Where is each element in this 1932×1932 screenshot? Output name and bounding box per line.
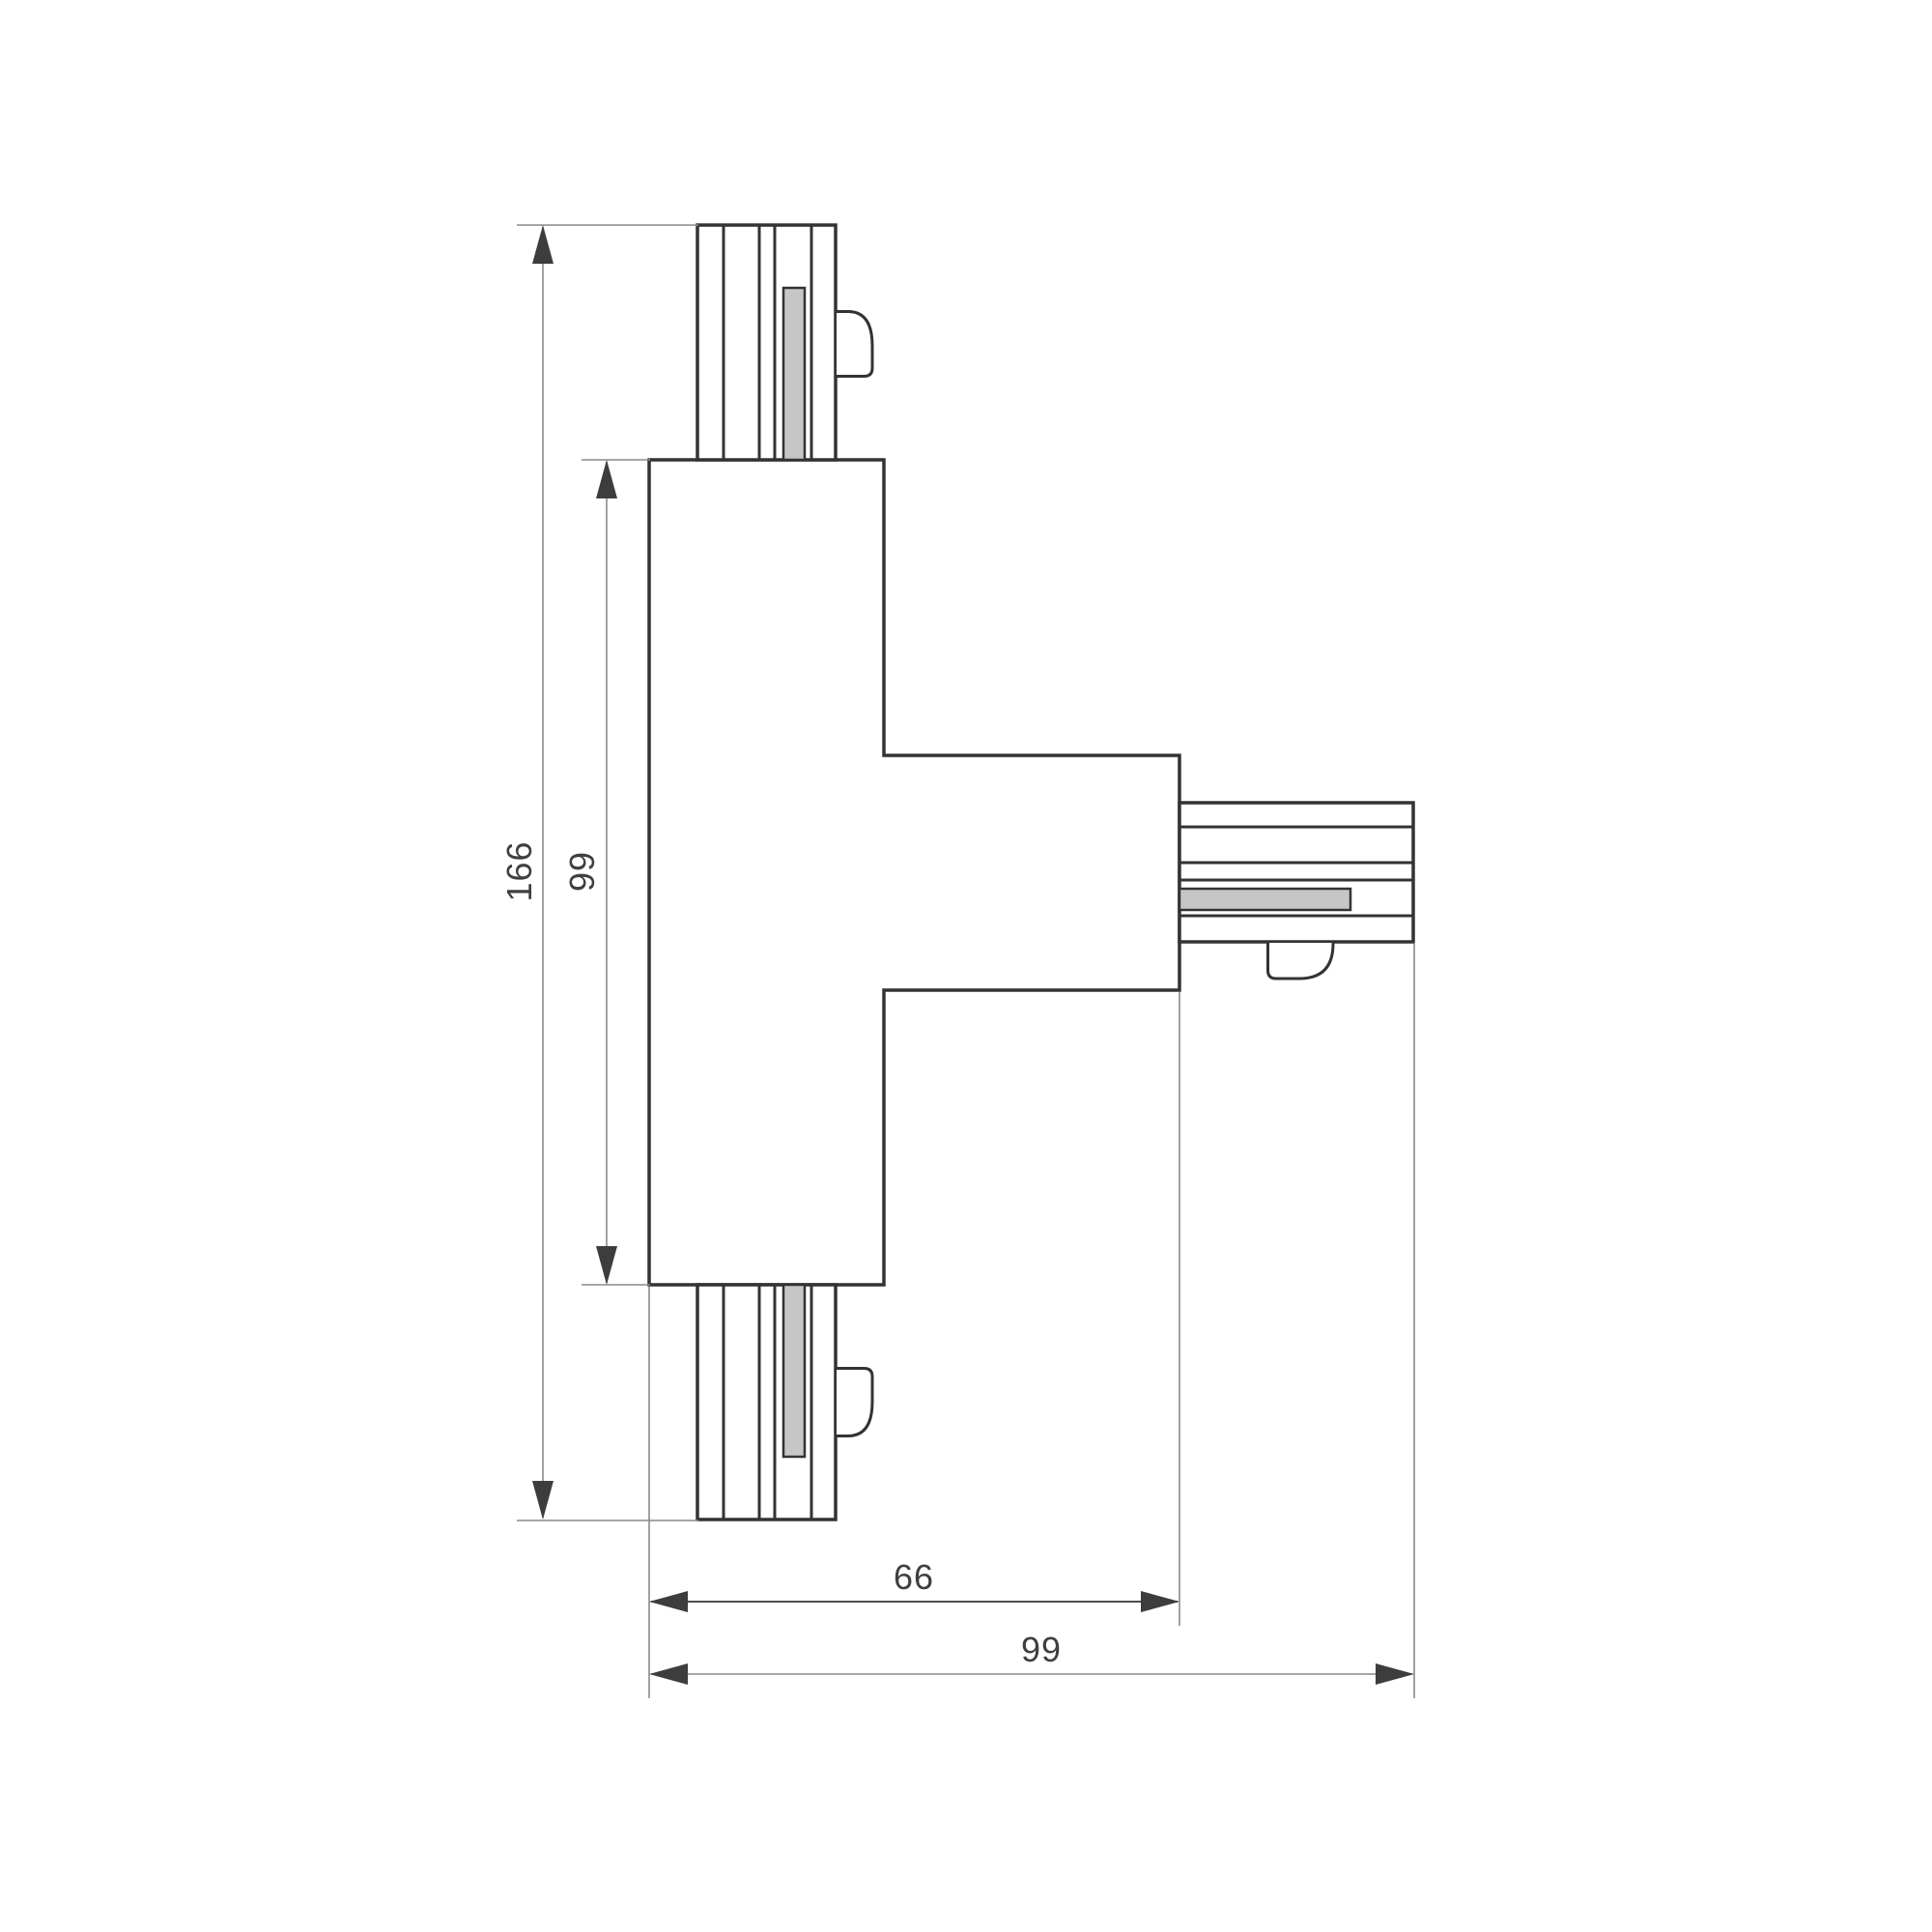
top-terminal xyxy=(697,225,872,460)
dimension-overall-width: 99 xyxy=(649,1630,1414,1685)
top-terminal-latch xyxy=(837,312,872,377)
bottom-terminal-contact-strip xyxy=(783,1285,805,1457)
bottom-terminal-latch xyxy=(837,1369,872,1436)
arrowhead-right xyxy=(1141,1591,1179,1612)
right-terminal xyxy=(1179,803,1413,979)
right-terminal-outline xyxy=(1179,803,1413,942)
arrowhead-left xyxy=(649,1591,688,1612)
arrowhead-down xyxy=(532,1481,554,1520)
technical-drawing-canvas: 166 99 66 99 xyxy=(0,0,1932,1932)
dim-label-99h: 99 xyxy=(1021,1630,1062,1669)
right-terminal-contact-strip xyxy=(1179,889,1350,910)
dimension-body-height: 99 xyxy=(562,460,650,1285)
t-connector-drawing: 166 99 66 99 xyxy=(0,0,1932,1932)
bottom-terminal-outline xyxy=(697,1285,836,1520)
right-terminal-latch xyxy=(1268,943,1334,979)
dim-label-99v: 99 xyxy=(562,851,602,892)
dim-label-66: 66 xyxy=(894,1557,934,1597)
arrowhead-down xyxy=(596,1246,617,1285)
arrowhead-up xyxy=(532,225,554,264)
top-terminal-outline xyxy=(697,225,836,460)
dim-label-166: 166 xyxy=(499,840,539,901)
arrowhead-right xyxy=(1376,1663,1414,1685)
bottom-terminal xyxy=(697,1285,872,1520)
dimension-arm-length: 66 xyxy=(649,1557,1179,1612)
arrowhead-up xyxy=(596,460,617,498)
arrowhead-left xyxy=(649,1663,688,1685)
connector-body-outline xyxy=(649,460,1179,1285)
top-terminal-contact-strip xyxy=(783,288,805,460)
